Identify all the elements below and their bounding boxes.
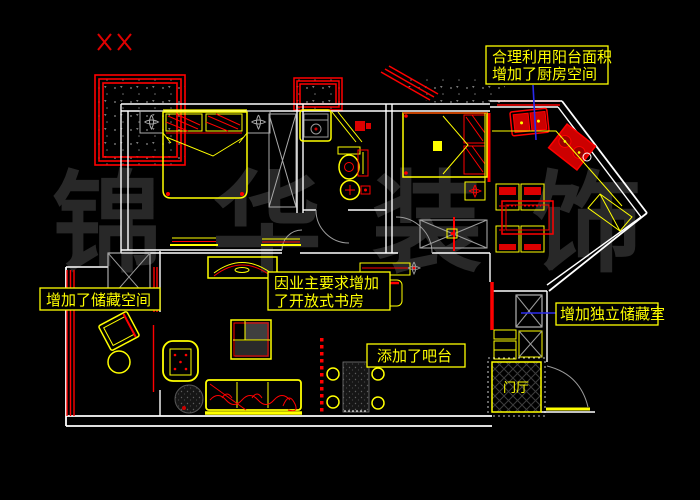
bar-counter: [327, 362, 384, 412]
balcony-top-middle: [294, 78, 342, 110]
cad-canvas[interactable]: 锦华装饰: [0, 0, 700, 500]
coffee-table-rug: [231, 320, 271, 359]
bar-stool: [327, 368, 339, 380]
sofa-blanket: [210, 396, 290, 405]
kitchen-note[interactable]: 合理利用阳台面积 增加了厨房空间: [486, 46, 612, 84]
entry-hall-label: 门厅: [503, 380, 529, 395]
storage-right-note-text: 增加独立储藏室: [560, 306, 665, 323]
bar-stool: [327, 396, 339, 408]
leisure-room: [98, 311, 139, 373]
storage-cabinets-right: [494, 295, 542, 359]
round-table: [108, 351, 130, 373]
study-note[interactable]: 因业主要求增加 了开放式书房: [268, 272, 390, 310]
armchair: [163, 341, 198, 381]
study-note-line1: 因业主要求增加: [274, 275, 379, 292]
nightstand-right: [247, 111, 270, 133]
bar-note-text: 添加了吧台: [377, 348, 452, 365]
storage-left-note[interactable]: 增加了储藏空间: [40, 288, 160, 310]
entry-door-swing: [547, 366, 588, 407]
kitchen-note-line1: 合理利用阳台面积: [492, 49, 612, 66]
plant: [175, 385, 203, 413]
shower-fixture: [355, 121, 365, 131]
red-corner-marks: [98, 34, 131, 50]
storage-left-note-text: 增加了储藏空间: [46, 292, 151, 309]
leisure-chair: [98, 311, 139, 351]
sofa: [205, 380, 302, 413]
bar-note[interactable]: 添加了吧台: [367, 344, 465, 367]
floor-plan-drawing: 锦华装饰: [0, 0, 700, 500]
storage-right-note[interactable]: 增加独立储藏室: [556, 303, 665, 325]
washing-machine: [300, 110, 331, 141]
curtain-dotted-line: [320, 338, 324, 412]
bar-stool: [372, 368, 384, 380]
kitchen-sink: [510, 108, 549, 136]
kitchen-note-line2: 增加了厨房空间: [492, 66, 597, 83]
study-note-line2: 了开放式书房: [274, 293, 364, 310]
bar-stool: [372, 397, 384, 409]
